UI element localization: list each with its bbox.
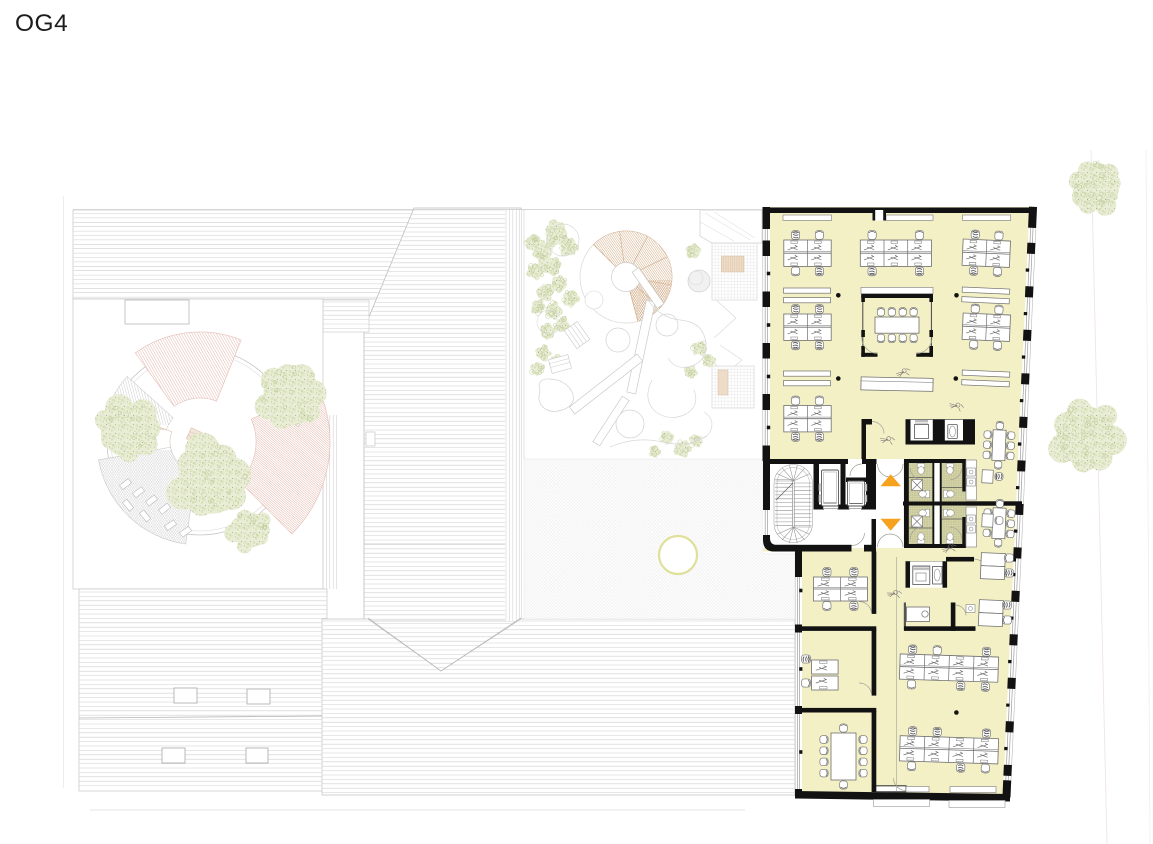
svg-text:OG4: OG4 <box>15 10 68 37</box>
